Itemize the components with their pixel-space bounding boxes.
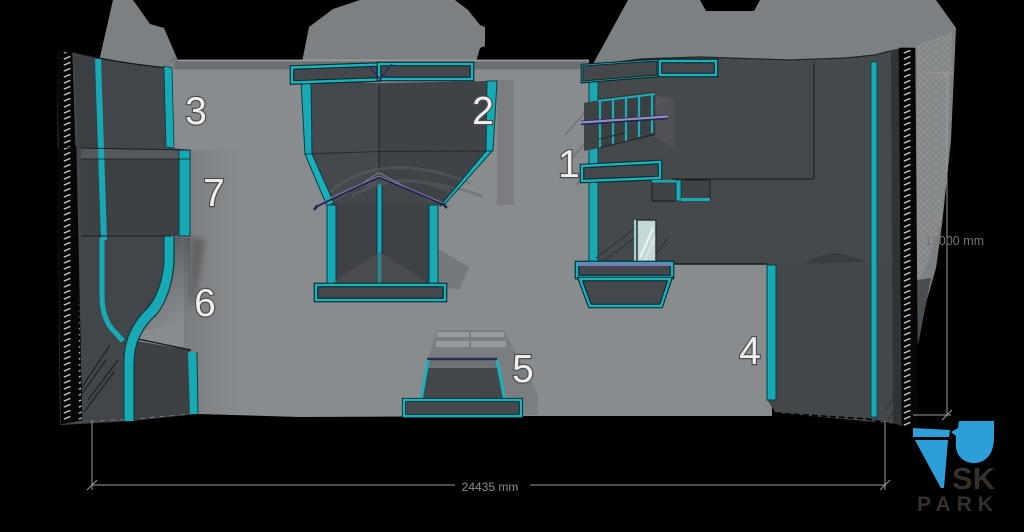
svg-text:5: 5 [512, 348, 534, 391]
svg-text:15000 mm: 15000 mm [925, 234, 984, 248]
svg-text:6: 6 [194, 282, 216, 325]
svg-text:24435 mm: 24435 mm [462, 480, 519, 494]
svg-text:4: 4 [739, 330, 761, 373]
svg-text:3: 3 [185, 90, 207, 133]
svg-text:7: 7 [203, 172, 225, 215]
svg-text:1: 1 [558, 143, 580, 186]
svg-text:2: 2 [472, 90, 494, 133]
svg-text:PARK: PARK [917, 493, 999, 516]
svg-text:SK: SK [952, 461, 996, 496]
